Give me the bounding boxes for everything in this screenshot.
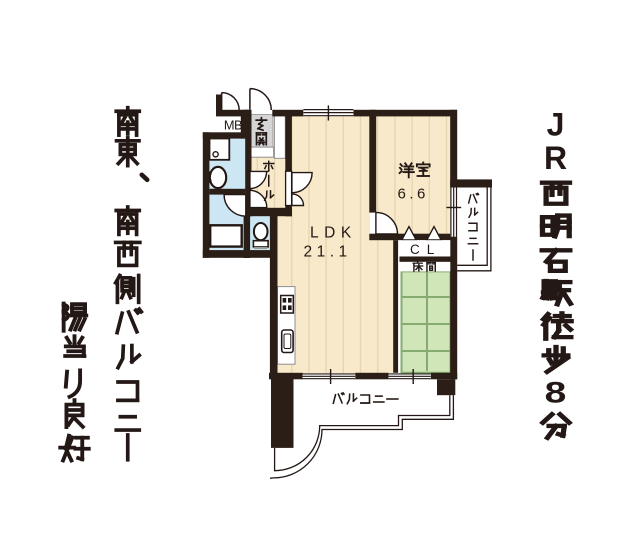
svg-text:21.1: 21.1 bbox=[304, 244, 352, 261]
svg-text:J: J bbox=[547, 107, 565, 143]
svg-text:R: R bbox=[544, 140, 567, 176]
svg-text:LDK: LDK bbox=[310, 225, 357, 242]
svg-text:8: 8 bbox=[545, 377, 567, 409]
svg-text:CL: CL bbox=[410, 242, 441, 257]
svg-text:6.6: 6.6 bbox=[398, 186, 429, 203]
svg-text:MB: MB bbox=[224, 117, 242, 132]
